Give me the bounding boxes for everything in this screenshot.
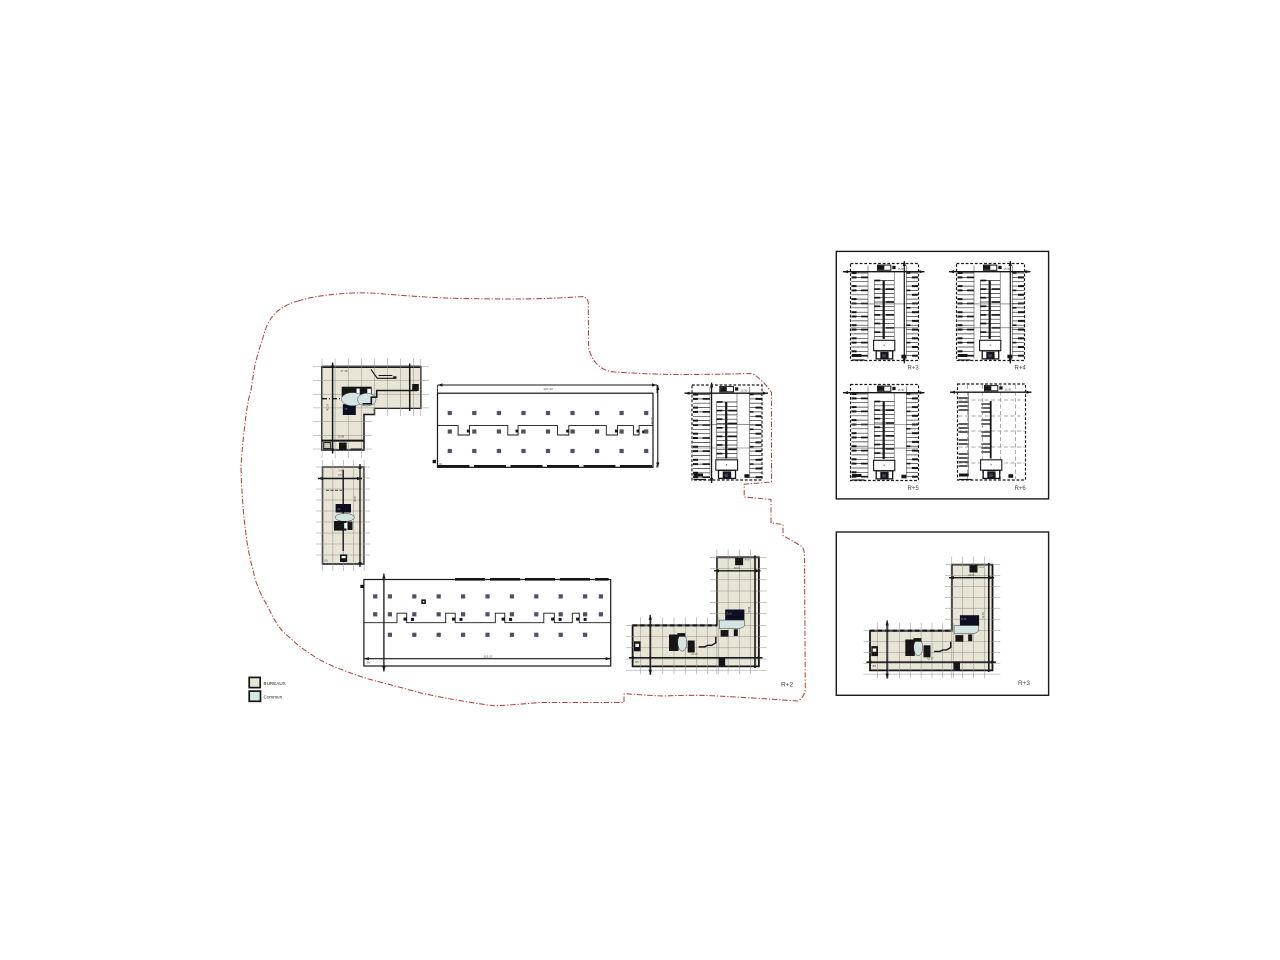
svg-text:≡∷≡: ≡∷≡ xyxy=(961,617,967,621)
svg-text:28.06: 28.06 xyxy=(979,567,985,569)
svg-text:5.45: 5.45 xyxy=(339,470,344,473)
svg-text:61.27: 61.27 xyxy=(927,657,934,661)
svg-text:DD: DD xyxy=(324,559,328,562)
svg-text:47.39: 47.39 xyxy=(341,369,348,373)
svg-text:28.06: 28.06 xyxy=(734,567,741,570)
svg-text:5A: 5A xyxy=(367,660,370,664)
svg-text:≡∷≡: ≡∷≡ xyxy=(726,611,732,615)
svg-text:BUREAUX: BUREAUX xyxy=(264,681,286,686)
svg-text:45.05: 45.05 xyxy=(650,417,654,424)
svg-text:119.17: 119.17 xyxy=(484,654,493,658)
svg-text:15.30: 15.30 xyxy=(898,267,905,271)
svg-text:∷≡: ∷≡ xyxy=(337,507,341,511)
svg-text:15.30: 15.30 xyxy=(741,388,748,392)
svg-text:Commun: Commun xyxy=(264,695,283,700)
svg-text:10.00: 10.00 xyxy=(338,474,345,477)
svg-text:R+5: R+5 xyxy=(908,486,920,492)
svg-text:40.14: 40.14 xyxy=(326,404,330,411)
svg-text:46.87: 46.87 xyxy=(353,495,357,502)
svg-text:28.06: 28.06 xyxy=(744,560,750,562)
svg-text:R+3: R+3 xyxy=(908,366,920,372)
svg-text:15.08: 15.08 xyxy=(338,435,345,439)
svg-text:61.27: 61.27 xyxy=(692,652,699,656)
svg-text:BH: BH xyxy=(873,665,877,668)
svg-text:32.06: 32.06 xyxy=(982,612,985,619)
svg-text:28.06: 28.06 xyxy=(968,574,975,577)
svg-text:BH: BH xyxy=(635,661,639,664)
svg-text:15.30: 15.30 xyxy=(1004,267,1011,271)
svg-text:32.06: 32.06 xyxy=(748,606,751,613)
svg-text:R+4: R+4 xyxy=(1015,366,1027,372)
svg-text:15.30: 15.30 xyxy=(1005,387,1012,391)
svg-text:15.30: 15.30 xyxy=(898,388,905,392)
svg-text:∷≡: ∷≡ xyxy=(344,407,348,411)
svg-text:R+3: R+3 xyxy=(1018,680,1030,687)
svg-text:107.43: 107.43 xyxy=(543,387,553,391)
svg-text:R+6: R+6 xyxy=(1015,486,1027,492)
svg-text:R+2: R+2 xyxy=(781,681,794,688)
